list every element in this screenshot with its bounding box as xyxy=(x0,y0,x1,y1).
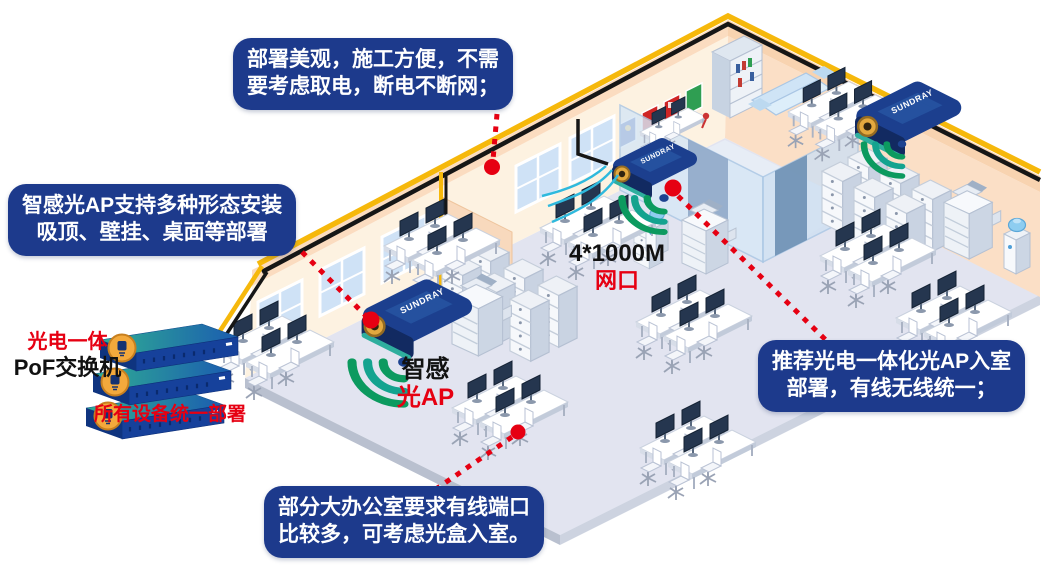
callout-top: 部署美观，施工方便，不需 要考虑取电，断电不断网； xyxy=(233,38,513,110)
callout-top-line2: 要考虑取电，断电不断网； xyxy=(247,74,499,101)
anchor-dot xyxy=(665,180,682,197)
callout-bottom-line2: 比较多，可考虑光盒入室。 xyxy=(278,522,530,549)
pof-switch-label: 光电一体 PoF交换机 xyxy=(0,331,135,381)
callout-left: 智感光AP支持多种形态安装 吸顶、壁挂、桌面等部署 xyxy=(8,184,296,256)
pof-label-red: 光电一体 xyxy=(0,331,135,355)
deploy-caption: 所有设备统一部署 xyxy=(80,404,260,426)
callout-bottom-line1: 部分大办公室要求有线端口 xyxy=(278,495,530,522)
port-count-label: 4*1000M xyxy=(552,240,682,268)
callout-left-line1: 智感光AP支持多种形态安装 xyxy=(22,193,282,220)
optical-ap-deployment-diagram: SUNDRAY SUNDRAY SUNDRAY 部署美观，施工方便，不需 要考虑… xyxy=(0,0,1047,575)
anchor-dot xyxy=(363,312,380,329)
callout-bottom: 部分大办公室要求有线端口 比较多，可考虑光盒入室。 xyxy=(264,486,544,558)
callout-right: 推荐光电一体化光AP入室 部署，有线无线统一； xyxy=(758,340,1025,412)
ap-name-black: 智感 xyxy=(388,356,463,384)
port-label: 4*1000M 网口 xyxy=(552,240,682,294)
callout-right-line1: 推荐光电一体化光AP入室 xyxy=(772,349,1011,376)
port-type-label: 网口 xyxy=(552,268,682,294)
callout-right-line2: 部署，有线无线统一； xyxy=(772,376,1011,403)
pof-label-black: PoF交换机 xyxy=(0,355,135,381)
callout-top-line1: 部署美观，施工方便，不需 xyxy=(247,47,499,74)
ap-name-label: 智感 光AP xyxy=(388,356,463,413)
anchor-dot xyxy=(484,159,500,175)
anchor-dot xyxy=(511,425,526,440)
ap-name-red: 光AP xyxy=(388,384,463,412)
callout-left-line2: 吸顶、壁挂、桌面等部署 xyxy=(22,220,282,247)
desk-lamp xyxy=(703,113,709,119)
